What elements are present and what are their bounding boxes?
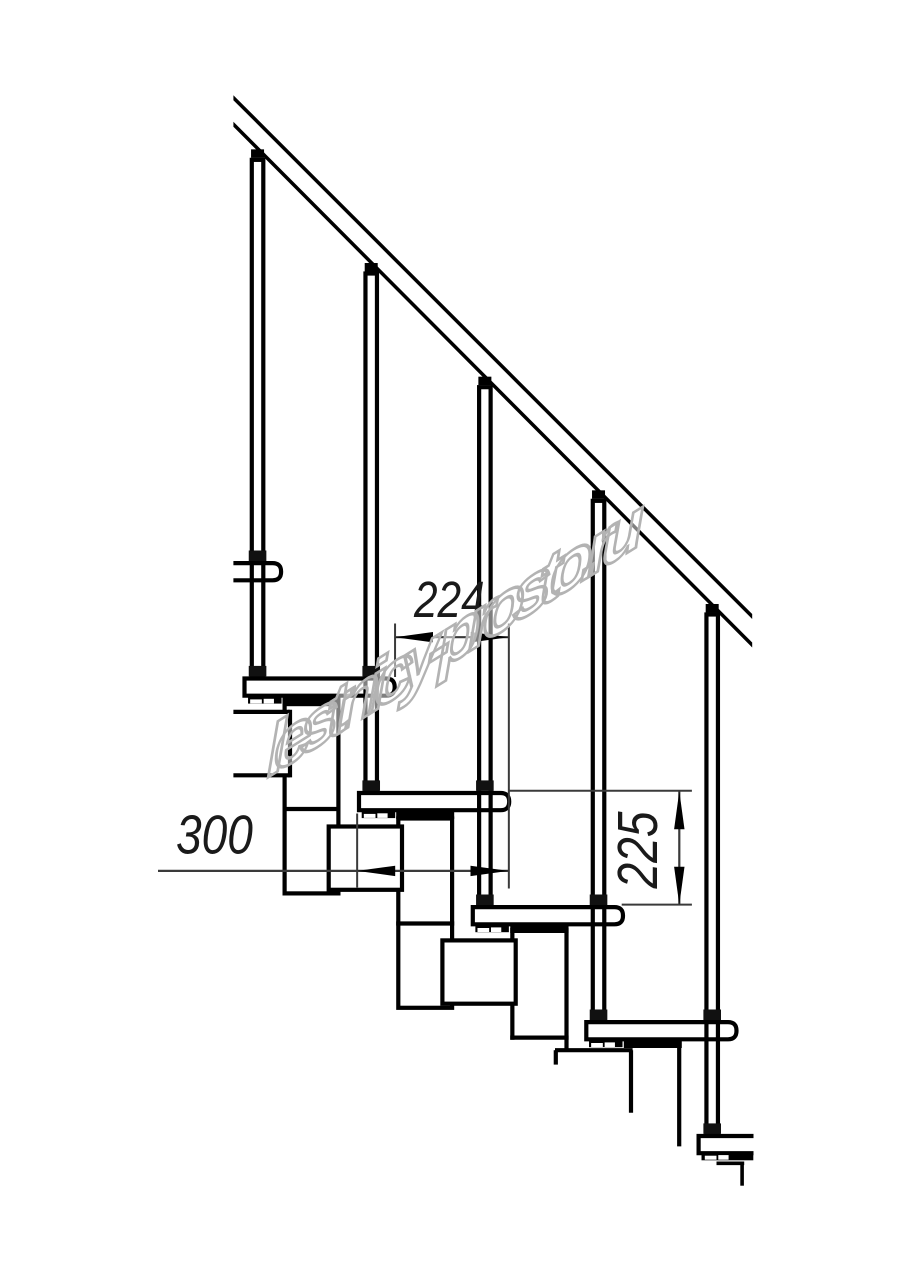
svg-text:300: 300 (176, 804, 253, 866)
svg-text:225: 225 (605, 811, 669, 889)
